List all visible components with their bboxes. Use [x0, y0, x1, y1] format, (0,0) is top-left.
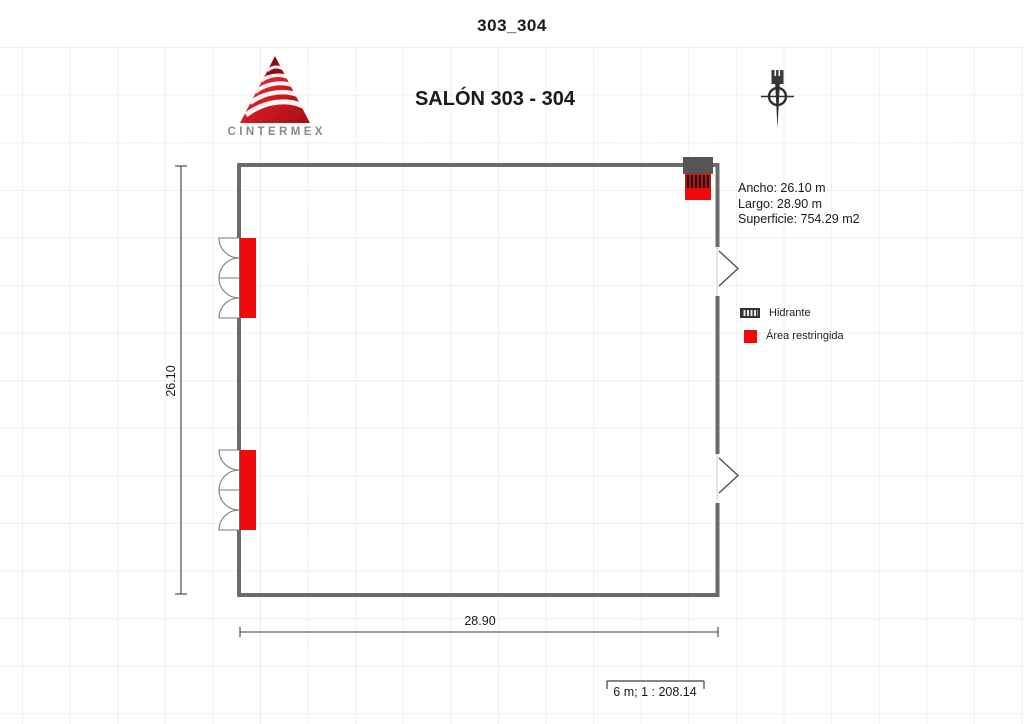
legend-item-restricted: Área restringida [740, 329, 844, 343]
info-superficie: Superficie: 754.29 m2 [738, 212, 860, 228]
restricted-area-lower [240, 450, 256, 530]
restricted-area-icon [744, 330, 757, 343]
door-swings-lower [219, 450, 239, 530]
width-dimension-line [240, 627, 718, 637]
legend-item-hydrant: Hidrante [740, 306, 844, 320]
info-largo: Largo: 28.90 m [738, 197, 860, 213]
legend-restricted-label: Área restringida [766, 330, 844, 342]
plan-walls [239, 165, 718, 595]
door-swings-upper [219, 238, 239, 318]
info-ancho: Ancho: 26.10 m [738, 181, 860, 197]
legend-hydrant-label: Hidrante [769, 307, 811, 319]
legend: Hidrante Área restringida [740, 306, 844, 352]
door-opening-top [712, 247, 738, 296]
restricted-area-upper [240, 238, 256, 318]
scale-label: 6 m; 1 : 208.14 [590, 685, 720, 699]
width-dimension-label: 28.90 [440, 614, 520, 628]
door-opening-bottom [712, 454, 738, 503]
hydrant-icon [683, 157, 713, 200]
height-dimension-label: 26.10 [164, 359, 178, 403]
plan-info: Ancho: 26.10 m Largo: 28.90 m Superficie… [738, 181, 860, 228]
hydrant-icon [740, 308, 760, 318]
